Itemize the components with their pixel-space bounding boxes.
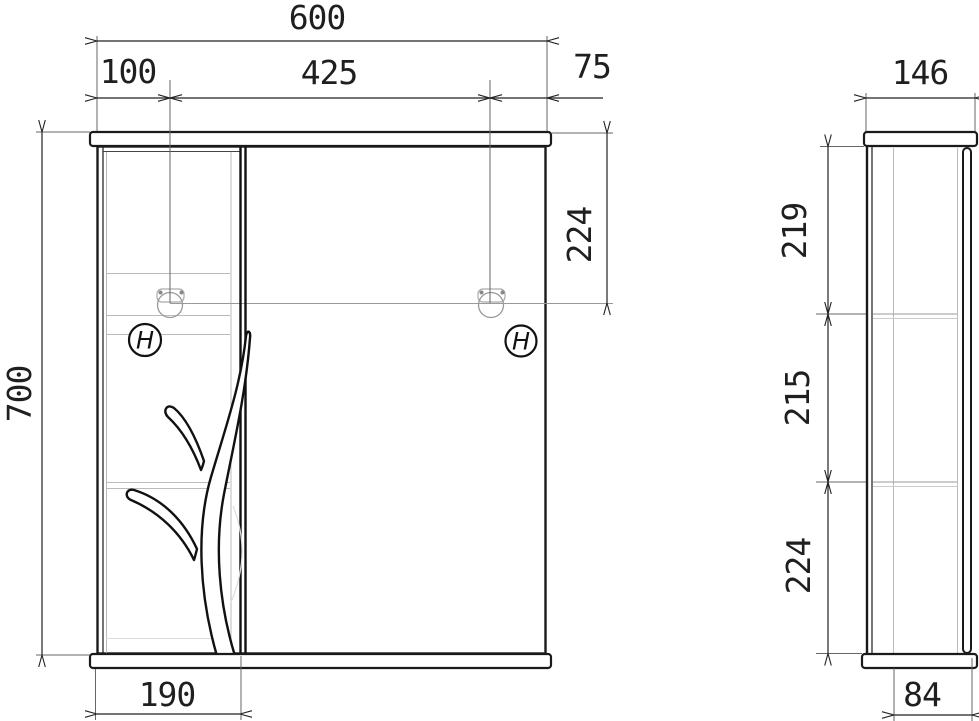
lamp-right-screw-icon xyxy=(501,291,505,295)
dim-label-84: 84 xyxy=(903,675,941,714)
lamp-right-screw-icon xyxy=(480,291,484,295)
side-bottom-ledge xyxy=(862,654,977,668)
dim-label-224-front: 224 xyxy=(560,207,599,264)
front-view: H H xyxy=(90,132,613,668)
lamp-left-screw-icon xyxy=(159,291,163,295)
side-view xyxy=(862,132,977,668)
handle-mark-left-letter: H xyxy=(136,327,154,355)
side-door-panel xyxy=(963,148,971,653)
dim-label-219: 219 xyxy=(775,203,814,260)
handle-mark-left: H xyxy=(129,324,161,356)
front-crown xyxy=(90,132,551,146)
handle-mark-right-letter: H xyxy=(512,328,530,356)
dim-label-425: 425 xyxy=(301,53,358,92)
dim-label-700: 700 xyxy=(0,366,39,423)
dim-label-215: 215 xyxy=(778,370,817,427)
lamp-left-screw-icon xyxy=(180,291,184,295)
side-crown xyxy=(864,132,977,146)
dim-label-75: 75 xyxy=(573,47,611,86)
dim-label-146: 146 xyxy=(892,53,949,92)
handle-mark-right: H xyxy=(506,326,537,357)
dim-label-100: 100 xyxy=(100,52,157,91)
front-bottom-ledge xyxy=(90,654,551,668)
dim-label-190: 190 xyxy=(139,675,196,714)
cabinet-technical-drawing: H H xyxy=(0,0,979,721)
side-shelves xyxy=(873,314,957,487)
dim-label-224-side: 224 xyxy=(779,538,818,595)
front-body-outline xyxy=(98,147,546,654)
dim-label-600: 600 xyxy=(289,0,346,37)
drawing-canvas: H H xyxy=(0,0,979,721)
